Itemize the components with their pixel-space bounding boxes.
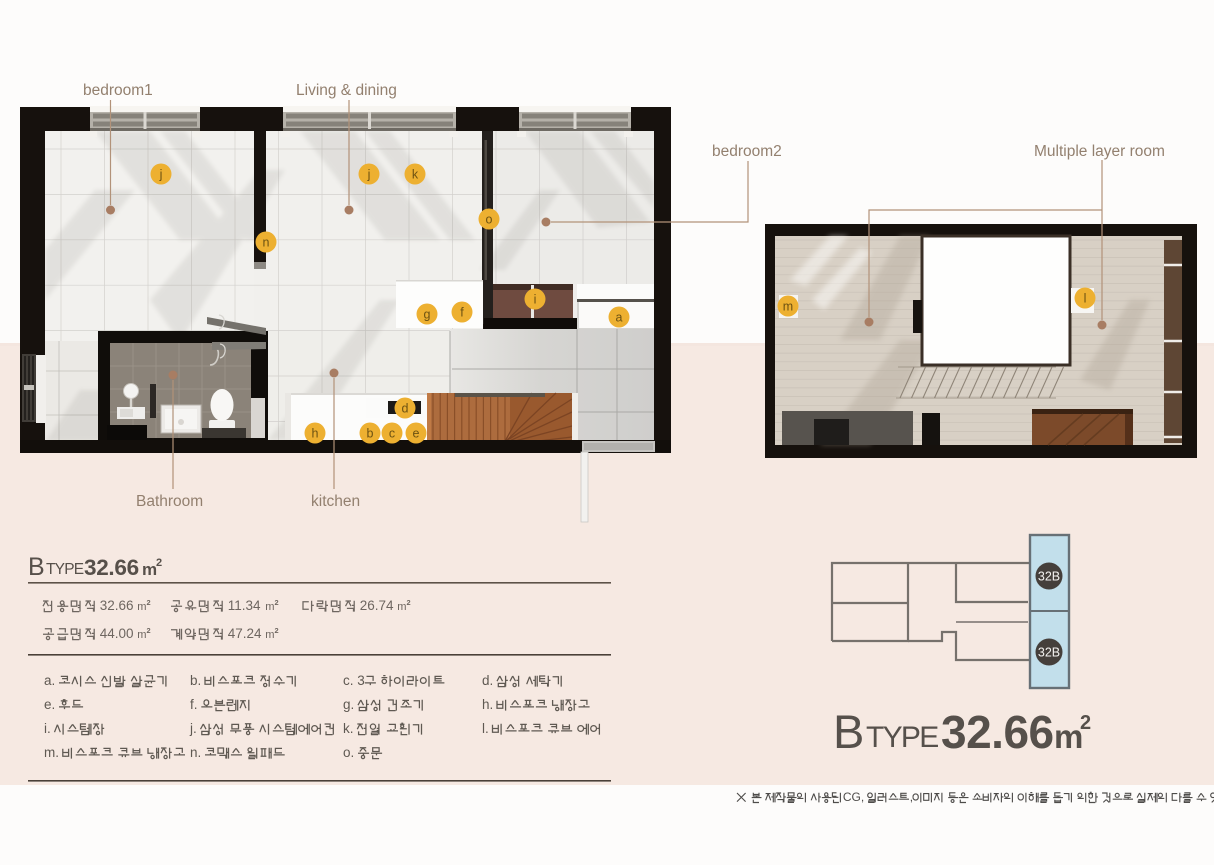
svg-text:c.: c. — [343, 673, 354, 688]
svg-text:CG,: CG, — [843, 790, 864, 804]
svg-text:44.00: 44.00 — [100, 626, 134, 641]
svg-text:n: n — [263, 236, 270, 250]
svg-text:TYPE: TYPE — [866, 721, 938, 754]
svg-text:32B: 32B — [1038, 646, 1060, 660]
svg-text:32B: 32B — [1038, 570, 1060, 584]
svg-text:o: o — [486, 213, 493, 227]
svg-text:m.: m. — [44, 745, 59, 760]
svg-text:g.: g. — [343, 697, 354, 712]
svg-text:26.74: 26.74 — [360, 598, 394, 613]
svg-text:l.: l. — [482, 721, 489, 736]
svg-text:m: m — [142, 560, 157, 579]
svg-text:m: m — [137, 601, 146, 613]
svg-text:32.66: 32.66 — [100, 598, 134, 613]
svg-text:c: c — [389, 427, 395, 441]
svg-text:k.: k. — [343, 721, 354, 736]
svg-text:Living & dining: Living & dining — [296, 82, 397, 99]
svg-text:TYPE: TYPE — [46, 561, 84, 578]
svg-text:2: 2 — [275, 626, 279, 635]
svg-text:2: 2 — [156, 557, 162, 569]
svg-text:m: m — [137, 629, 146, 641]
svg-text:32.66: 32.66 — [941, 706, 1054, 758]
svg-text:n.: n. — [190, 745, 201, 760]
svg-text:a: a — [616, 311, 623, 325]
svg-text:2: 2 — [147, 626, 151, 635]
svg-text:2: 2 — [275, 598, 279, 607]
svg-text:f.: f. — [190, 697, 198, 712]
svg-text:e: e — [413, 427, 420, 441]
svg-text:2: 2 — [147, 598, 151, 607]
svg-text:Bathroom: Bathroom — [136, 493, 203, 510]
svg-text:3: 3 — [357, 673, 365, 688]
svg-text:B: B — [833, 705, 864, 758]
svg-text:11.34: 11.34 — [228, 598, 261, 613]
svg-text:B: B — [28, 553, 45, 581]
svg-text:m: m — [265, 629, 274, 641]
svg-text:i.: i. — [44, 721, 51, 736]
svg-text:e.: e. — [44, 697, 55, 712]
svg-text:g: g — [424, 308, 431, 322]
svg-text:Multiple layer room: Multiple layer room — [1034, 143, 1165, 160]
svg-text:m: m — [265, 601, 274, 613]
svg-text:j: j — [367, 168, 371, 182]
svg-text:bedroom1: bedroom1 — [83, 82, 153, 99]
svg-text:h.: h. — [482, 697, 493, 712]
svg-text:j.: j. — [189, 721, 197, 736]
svg-text:o.: o. — [343, 745, 354, 760]
svg-text:kitchen: kitchen — [311, 493, 360, 510]
svg-text:l: l — [1084, 292, 1087, 306]
svg-text:d.: d. — [482, 673, 493, 688]
svg-text:32.66: 32.66 — [84, 555, 139, 580]
svg-text:b: b — [367, 427, 374, 441]
svg-text:k: k — [412, 168, 419, 182]
svg-text:2: 2 — [1080, 712, 1091, 734]
svg-text:m: m — [783, 300, 793, 314]
svg-text:b.: b. — [190, 673, 201, 688]
svg-text:bedroom2: bedroom2 — [712, 143, 782, 160]
svg-text:d: d — [402, 402, 409, 416]
svg-text:a.: a. — [44, 673, 55, 688]
svg-text:,: , — [910, 790, 913, 804]
svg-text:h: h — [312, 427, 319, 441]
svg-text:2: 2 — [407, 598, 411, 607]
svg-text:f: f — [460, 306, 464, 320]
svg-text:m: m — [1054, 718, 1083, 755]
svg-text:m: m — [397, 601, 406, 613]
svg-text:j: j — [159, 168, 163, 182]
svg-text:i: i — [534, 293, 537, 307]
svg-text:47.24: 47.24 — [228, 626, 262, 641]
